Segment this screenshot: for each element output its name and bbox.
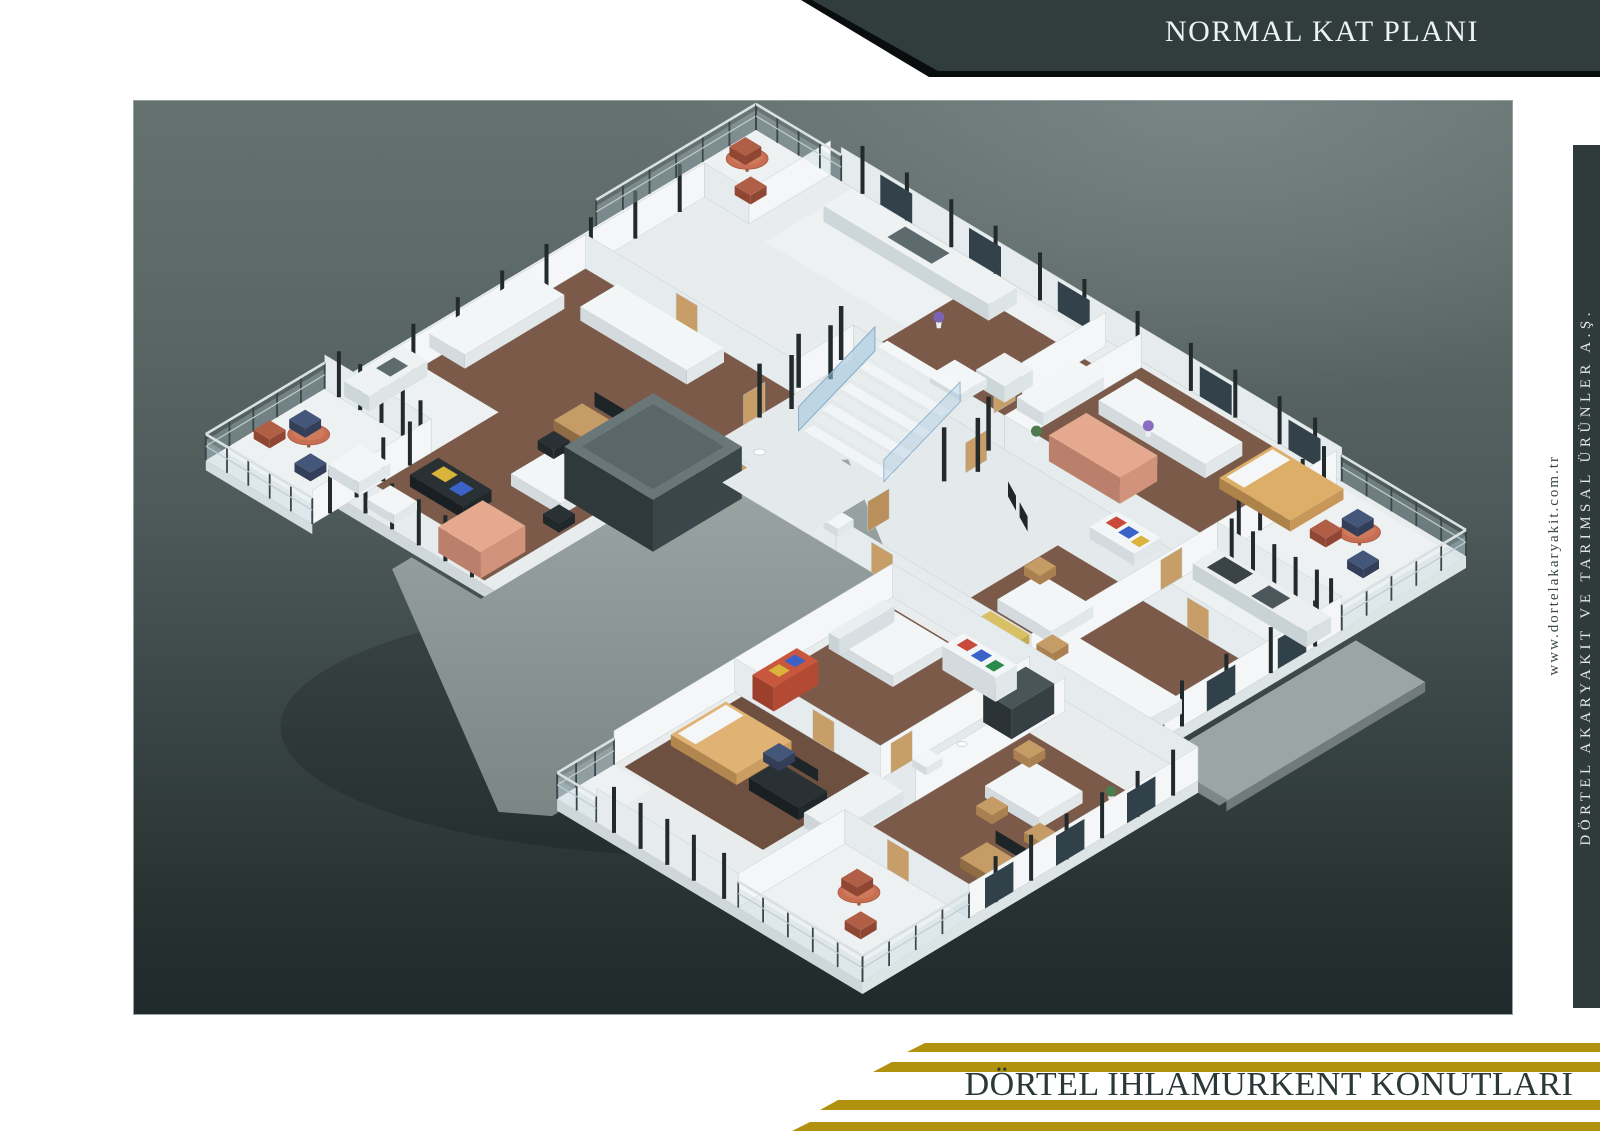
website-text: www.dortelakaryakit.com.tr (1546, 455, 1563, 676)
gold-stripe-4 (792, 1122, 1600, 1131)
company-bar: DÖRTEL AKARYAKIT VE TARIMSAL ÜRÜNLER A.Ş… (1573, 145, 1600, 1008)
gold-stripe-1 (907, 1043, 1600, 1052)
website-vertical: www.dortelakaryakit.com.tr (1541, 380, 1567, 750)
gold-stripe-3 (820, 1100, 1600, 1110)
floor-plan-render (134, 101, 1512, 1014)
page-title: NORMAL KAT PLANI (1132, 15, 1512, 49)
project-title: DÖRTEL IHLAMURKENT KONUTLARI (945, 1068, 1593, 1102)
floor-plan-panel (133, 100, 1513, 1015)
company-text: DÖRTEL AKARYAKIT VE TARIMSAL ÜRÜNLER A.Ş… (1578, 308, 1595, 846)
